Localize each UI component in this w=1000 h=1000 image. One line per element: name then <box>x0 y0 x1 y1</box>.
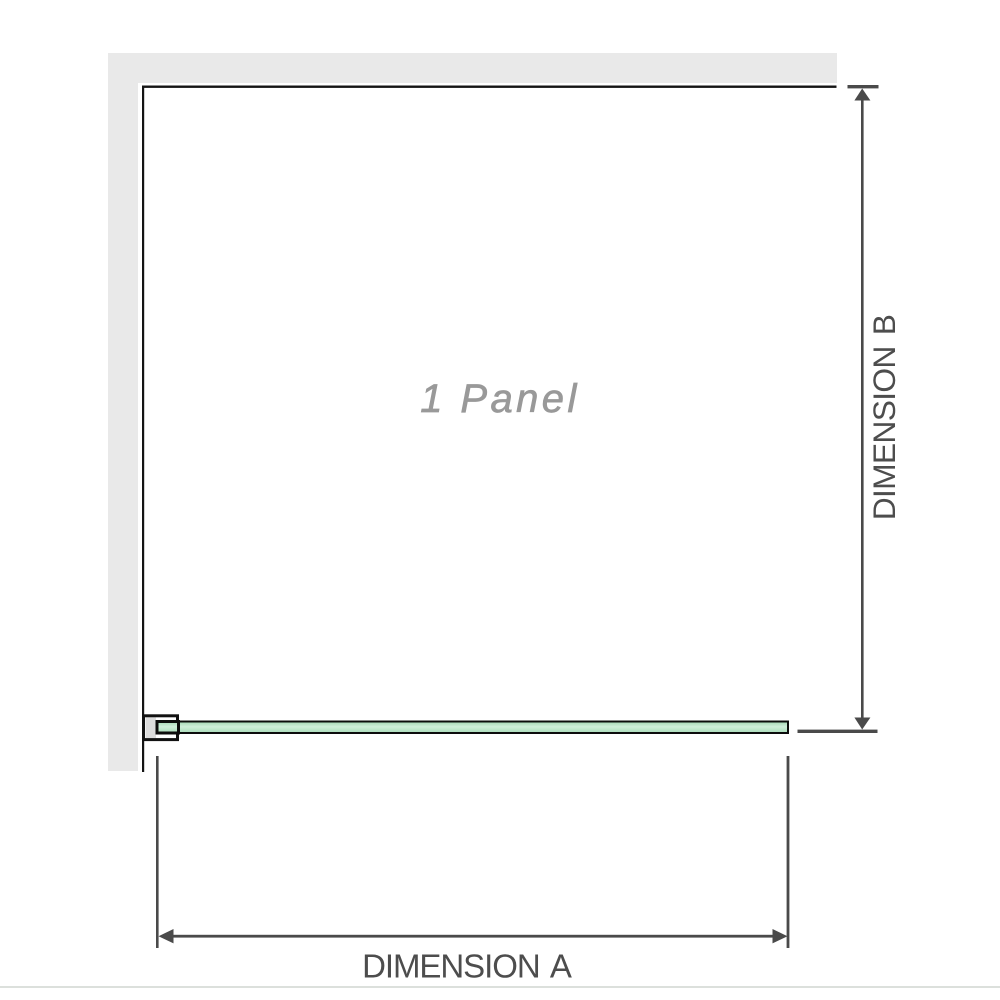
svg-text:DIMENSION A: DIMENSION A <box>362 948 572 985</box>
svg-text:1 Panel: 1 Panel <box>420 377 579 421</box>
svg-text:DIMENSION B: DIMENSION B <box>866 315 902 521</box>
